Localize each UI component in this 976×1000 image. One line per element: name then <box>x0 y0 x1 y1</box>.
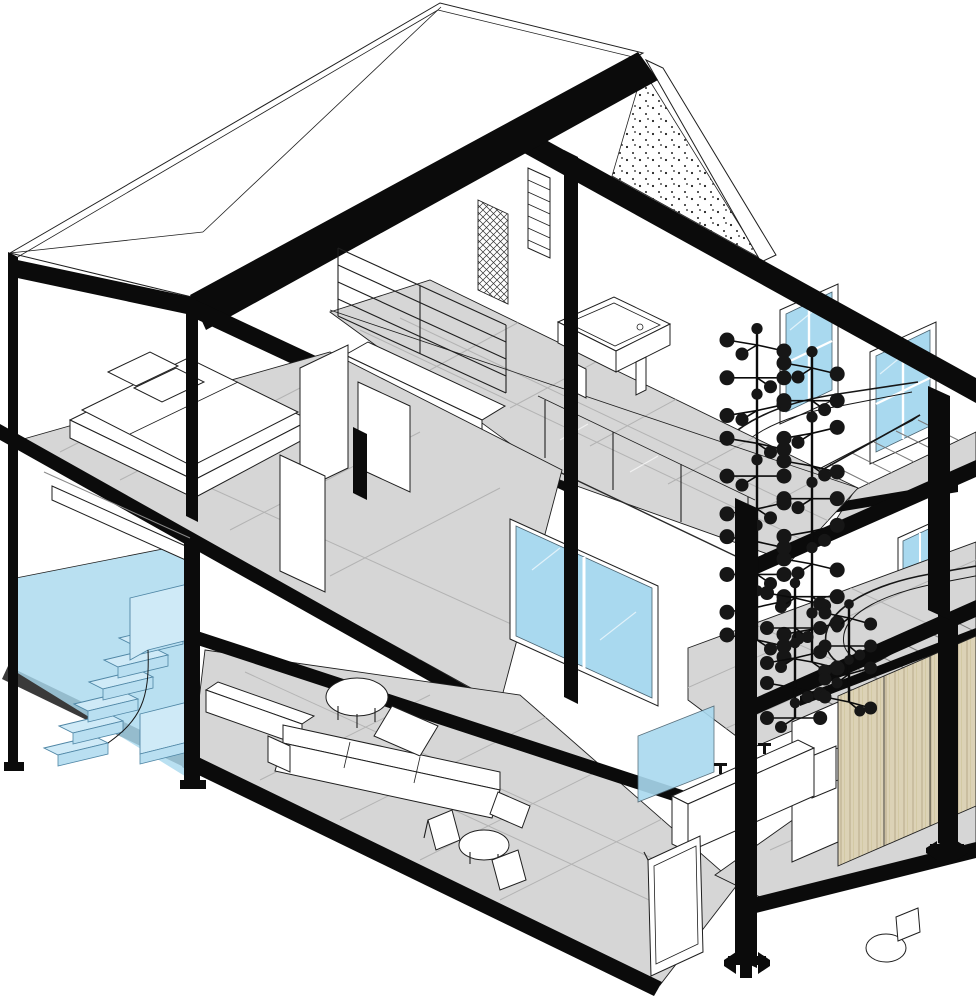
column-base-plate-mid <box>180 780 206 789</box>
column-base-plate <box>724 948 770 978</box>
toilet <box>866 908 920 962</box>
section-drawing <box>0 0 976 1000</box>
axonometric-house-section <box>0 0 976 1000</box>
living-room-sliding-window <box>510 519 658 706</box>
column-base-plate-left <box>4 762 24 771</box>
blue-entry-stair-volume <box>16 544 188 778</box>
slatted-cabinet <box>478 168 550 304</box>
